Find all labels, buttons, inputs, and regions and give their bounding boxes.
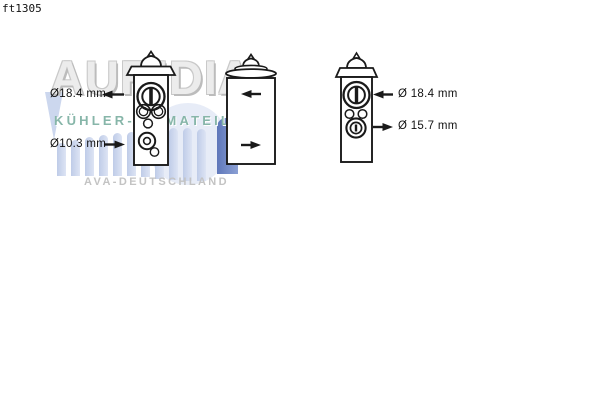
cap-flange — [127, 67, 175, 76]
dimension-arrow-right — [104, 141, 125, 149]
valve-drawing — [0, 0, 600, 400]
cap-flange — [226, 69, 276, 78]
cap-flange — [336, 68, 377, 77]
expansion-valve-front-view — [102, 52, 175, 166]
dimension-label-front-top: Ø18.4 mm — [50, 88, 106, 100]
cap-dome — [141, 56, 161, 67]
expansion-valve-side-view — [226, 55, 276, 165]
expansion-valve-port-view — [336, 53, 393, 162]
dimension-label-front-bottom: Ø10.3 mm — [50, 138, 106, 150]
dimension-label-port-bottom: Ø 15.7 mm — [398, 120, 458, 132]
dimension-label-port-top: Ø 18.4 mm — [398, 88, 458, 100]
cap-dome — [347, 58, 366, 68]
dimension-arrow-right — [373, 123, 393, 131]
dimension-arrow-left — [373, 91, 393, 99]
